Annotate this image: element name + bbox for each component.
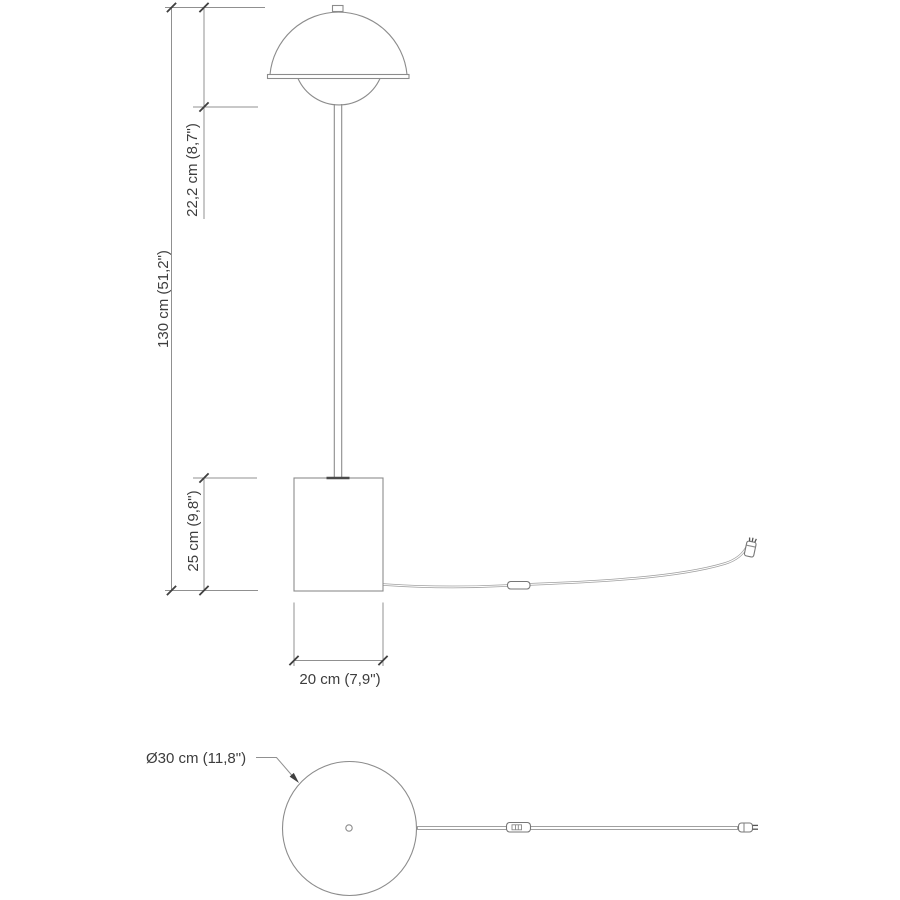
lamp-shade-dome: [270, 12, 407, 74]
dimension-shade-height: 22,2 cm (8,7"): [184, 3, 209, 219]
top-view: Ø30 cm (11,8"): [146, 750, 758, 896]
plug-prong: [752, 538, 753, 542]
lamp-shade-rim: [268, 75, 410, 79]
plug-prong: [755, 539, 757, 543]
dimension-base-diameter: Ø30 cm (11,8"): [146, 750, 299, 783]
front-view: 130 cm (51,2") 22,2 cm (8,7") 25 cm (9,8…: [155, 3, 757, 688]
dimension-base-height: 25 cm (9,8"): [185, 473, 209, 595]
base-diameter-label: Ø30 cm (11,8"): [146, 750, 246, 767]
plug-body: [744, 541, 756, 558]
plug-prong: [749, 537, 751, 541]
inline-switch-front: [508, 582, 531, 590]
switch-button: [512, 825, 522, 830]
lamp-front-outline: [268, 6, 410, 592]
shade-top-nub: [333, 6, 344, 12]
cord-line: [383, 546, 748, 587]
power-cord-front: [383, 537, 757, 589]
dimension-extension-lines: [165, 8, 265, 591]
shade-height-label: 22,2 cm (8,7"): [184, 123, 201, 217]
base-height-label: 25 cm (9,8"): [185, 490, 202, 571]
cord-core: [383, 546, 748, 587]
base-width-label: 20 cm (7,9"): [299, 671, 380, 688]
total-height-label: 130 cm (51,2"): [155, 250, 172, 348]
dimension-base-width: 20 cm (7,9"): [289, 603, 387, 689]
leader-line: [256, 758, 296, 780]
dimension-drawing-canvas: 130 cm (51,2") 22,2 cm (8,7") 25 cm (9,8…: [0, 0, 900, 900]
dimension-total-height: 130 cm (51,2"): [155, 3, 176, 595]
lamp-dimension-drawing: 130 cm (51,2") 22,2 cm (8,7") 25 cm (9,8…: [0, 0, 900, 900]
lamp-diffuser-sphere: [298, 79, 380, 105]
power-cord-top: [417, 823, 758, 833]
lamp-base: [294, 478, 383, 591]
stem-center-hole: [346, 825, 352, 831]
power-plug-top: [739, 823, 759, 832]
plug-body: [739, 823, 753, 832]
power-plug-front: [744, 537, 757, 558]
